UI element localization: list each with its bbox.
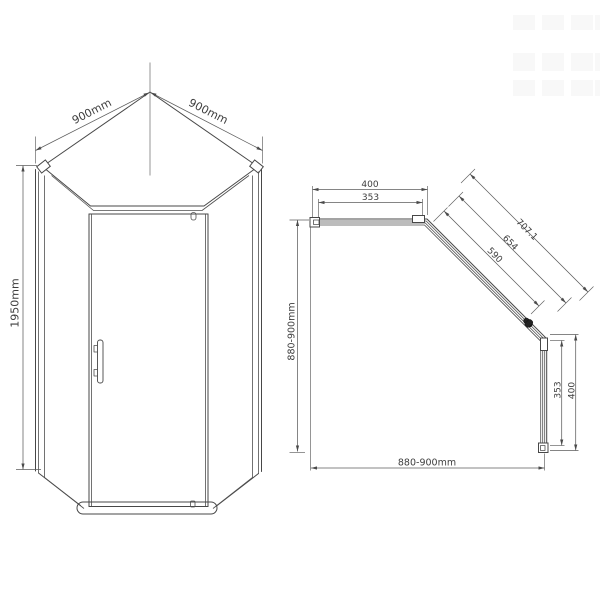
plan-dim-bottom: 880-900mm [311,228,545,471]
plan-dim-left-label: 880-900mm [287,302,298,360]
glass-side-panel-right [213,170,262,509]
plan-dim-bottom-label: 880-900mm [398,458,456,469]
dim-widths: 900mm 900mm [36,93,263,164]
plan-dim-right: 353 400 [550,335,579,451]
dim-width-left-label: 900mm [70,96,114,127]
front-view: 1950mm 900mm 900mm [9,63,264,515]
plan-bracket-top [413,216,425,223]
dim-height: 1950mm [9,166,42,470]
plan-dim-diagonal-outer-label: 707.1 [514,218,539,243]
technical-drawing: 1950mm 900mm 900mm [0,0,600,600]
plan-bracket-right [541,338,548,351]
plan-dim-top-inner-label: 353 [362,193,379,203]
door-handle [94,340,103,383]
plan-dim-diagonal-inner-label: 590 [485,246,504,265]
plan-dim-right-inner-label: 353 [554,381,564,398]
plan-dim-top-outer-label: 400 [361,180,378,190]
plan-dim-right-outer-label: 400 [568,382,578,399]
drawing-canvas: 1950mm 900mm 900mm [0,0,600,600]
top-frame [46,170,254,211]
plan-enclosure-outline [320,219,547,443]
dim-height-label: 1950mm [9,278,22,327]
shower-tray [77,502,217,514]
glass-side-panel-left [36,170,85,509]
plan-wall-profile-top-left [310,218,320,228]
watermark [513,15,600,96]
plan-dim-left: 880-900mm [287,220,310,453]
plan-dim-diagonal-middle-label: 654 [500,234,519,253]
plan-view: 400 353 880-900mm 880-900mm [287,169,594,471]
plan-dim-diagonal: 590 654 707.1 [434,169,594,314]
plan-dim-top: 400 353 [313,180,428,217]
shower-door [89,213,208,508]
plan-wall-profile-bottom-right [539,443,549,453]
